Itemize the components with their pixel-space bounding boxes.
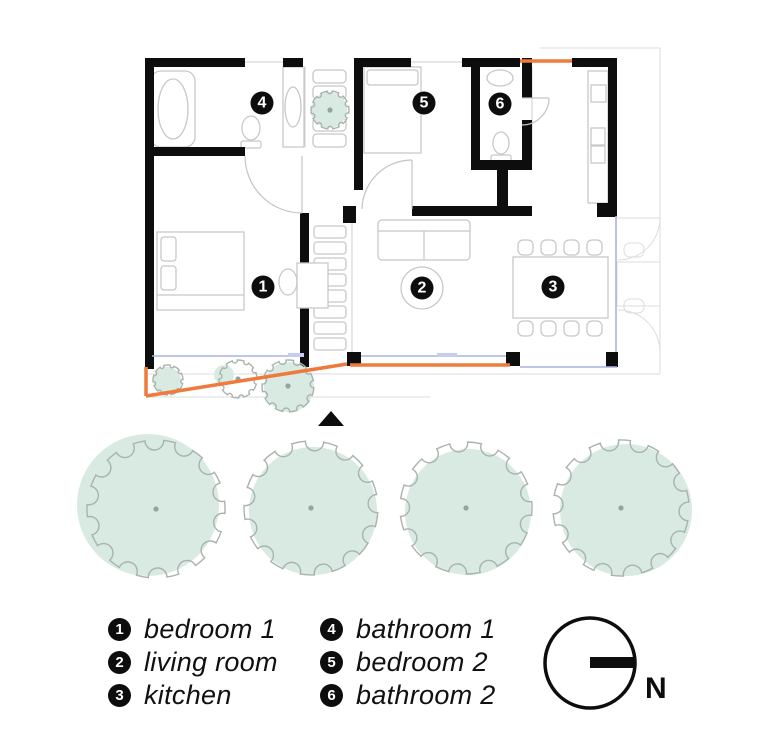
legend-item: 3 kitchen	[108, 679, 320, 712]
room-number-badge: 4	[320, 618, 343, 641]
room-number-badge: 2	[108, 651, 131, 674]
room-marker-label: 3	[549, 279, 558, 296]
room-number-badge: 3	[108, 684, 131, 707]
legend-item: 4 bathroom 1	[320, 613, 496, 646]
room-marker-6: 6	[489, 93, 512, 116]
room-number-badge: 1	[108, 618, 131, 641]
tree-icon	[311, 91, 349, 129]
bed2-icon	[364, 67, 421, 153]
room-number-badge: 6	[320, 684, 343, 707]
room-marker-1: 1	[252, 276, 275, 299]
compass-needle-icon	[590, 657, 635, 668]
room-number-badge: 5	[320, 651, 343, 674]
floor-plan-page: 123456 N 1 bedroom 1 2 living room 3 kit…	[0, 0, 768, 756]
room-label: bedroom 1	[144, 614, 276, 645]
room-marker-5: 5	[413, 92, 436, 115]
desk-icon	[279, 263, 328, 308]
room-marker-label: 4	[258, 95, 267, 112]
legend-item: 2 living room	[108, 646, 320, 679]
room-label: bathroom 1	[356, 614, 496, 645]
room-label: bathroom 2	[356, 680, 496, 711]
room-marker-2: 2	[411, 277, 434, 300]
room-marker-label: 2	[418, 280, 427, 297]
sink2-icon	[487, 70, 513, 86]
compass-north-label: N	[645, 672, 667, 705]
tree-icon	[401, 442, 533, 575]
toilet2-icon	[491, 132, 511, 162]
room-label: living room	[144, 647, 278, 678]
north-compass: N	[545, 618, 667, 708]
toilet-icon	[241, 116, 261, 148]
room-marker-label: 5	[420, 95, 429, 112]
tree-icon	[553, 440, 692, 576]
room-marker-label: 6	[496, 96, 505, 113]
sofa-icon	[378, 220, 470, 260]
plan-pointer-triangle-icon	[318, 411, 344, 426]
tree-icon	[77, 434, 225, 578]
kitchen-counter-icon	[588, 71, 608, 203]
room-marker-4: 4	[251, 92, 274, 115]
legend: 1 bedroom 1 2 living room 3 kitchen 4 ba…	[108, 613, 496, 712]
vanity-sink-icon	[283, 67, 304, 147]
bathtub-icon	[151, 71, 195, 147]
room-label: bedroom 2	[356, 647, 488, 678]
room-marker-3: 3	[542, 276, 565, 299]
legend-item: 5 bedroom 2	[320, 646, 496, 679]
site-trees	[77, 434, 692, 578]
room-marker-label: 1	[259, 279, 268, 296]
room-label: kitchen	[144, 680, 232, 711]
legend-column-right: 4 bathroom 1 5 bedroom 2 6 bathroom 2	[320, 613, 496, 712]
tree-icon	[262, 360, 314, 412]
legend-column-left: 1 bedroom 1 2 living room 3 kitchen	[108, 613, 320, 712]
bed-icon	[157, 232, 244, 310]
legend-item: 1 bedroom 1	[108, 613, 320, 646]
legend-item: 6 bathroom 2	[320, 679, 496, 712]
tree-icon	[244, 441, 378, 575]
